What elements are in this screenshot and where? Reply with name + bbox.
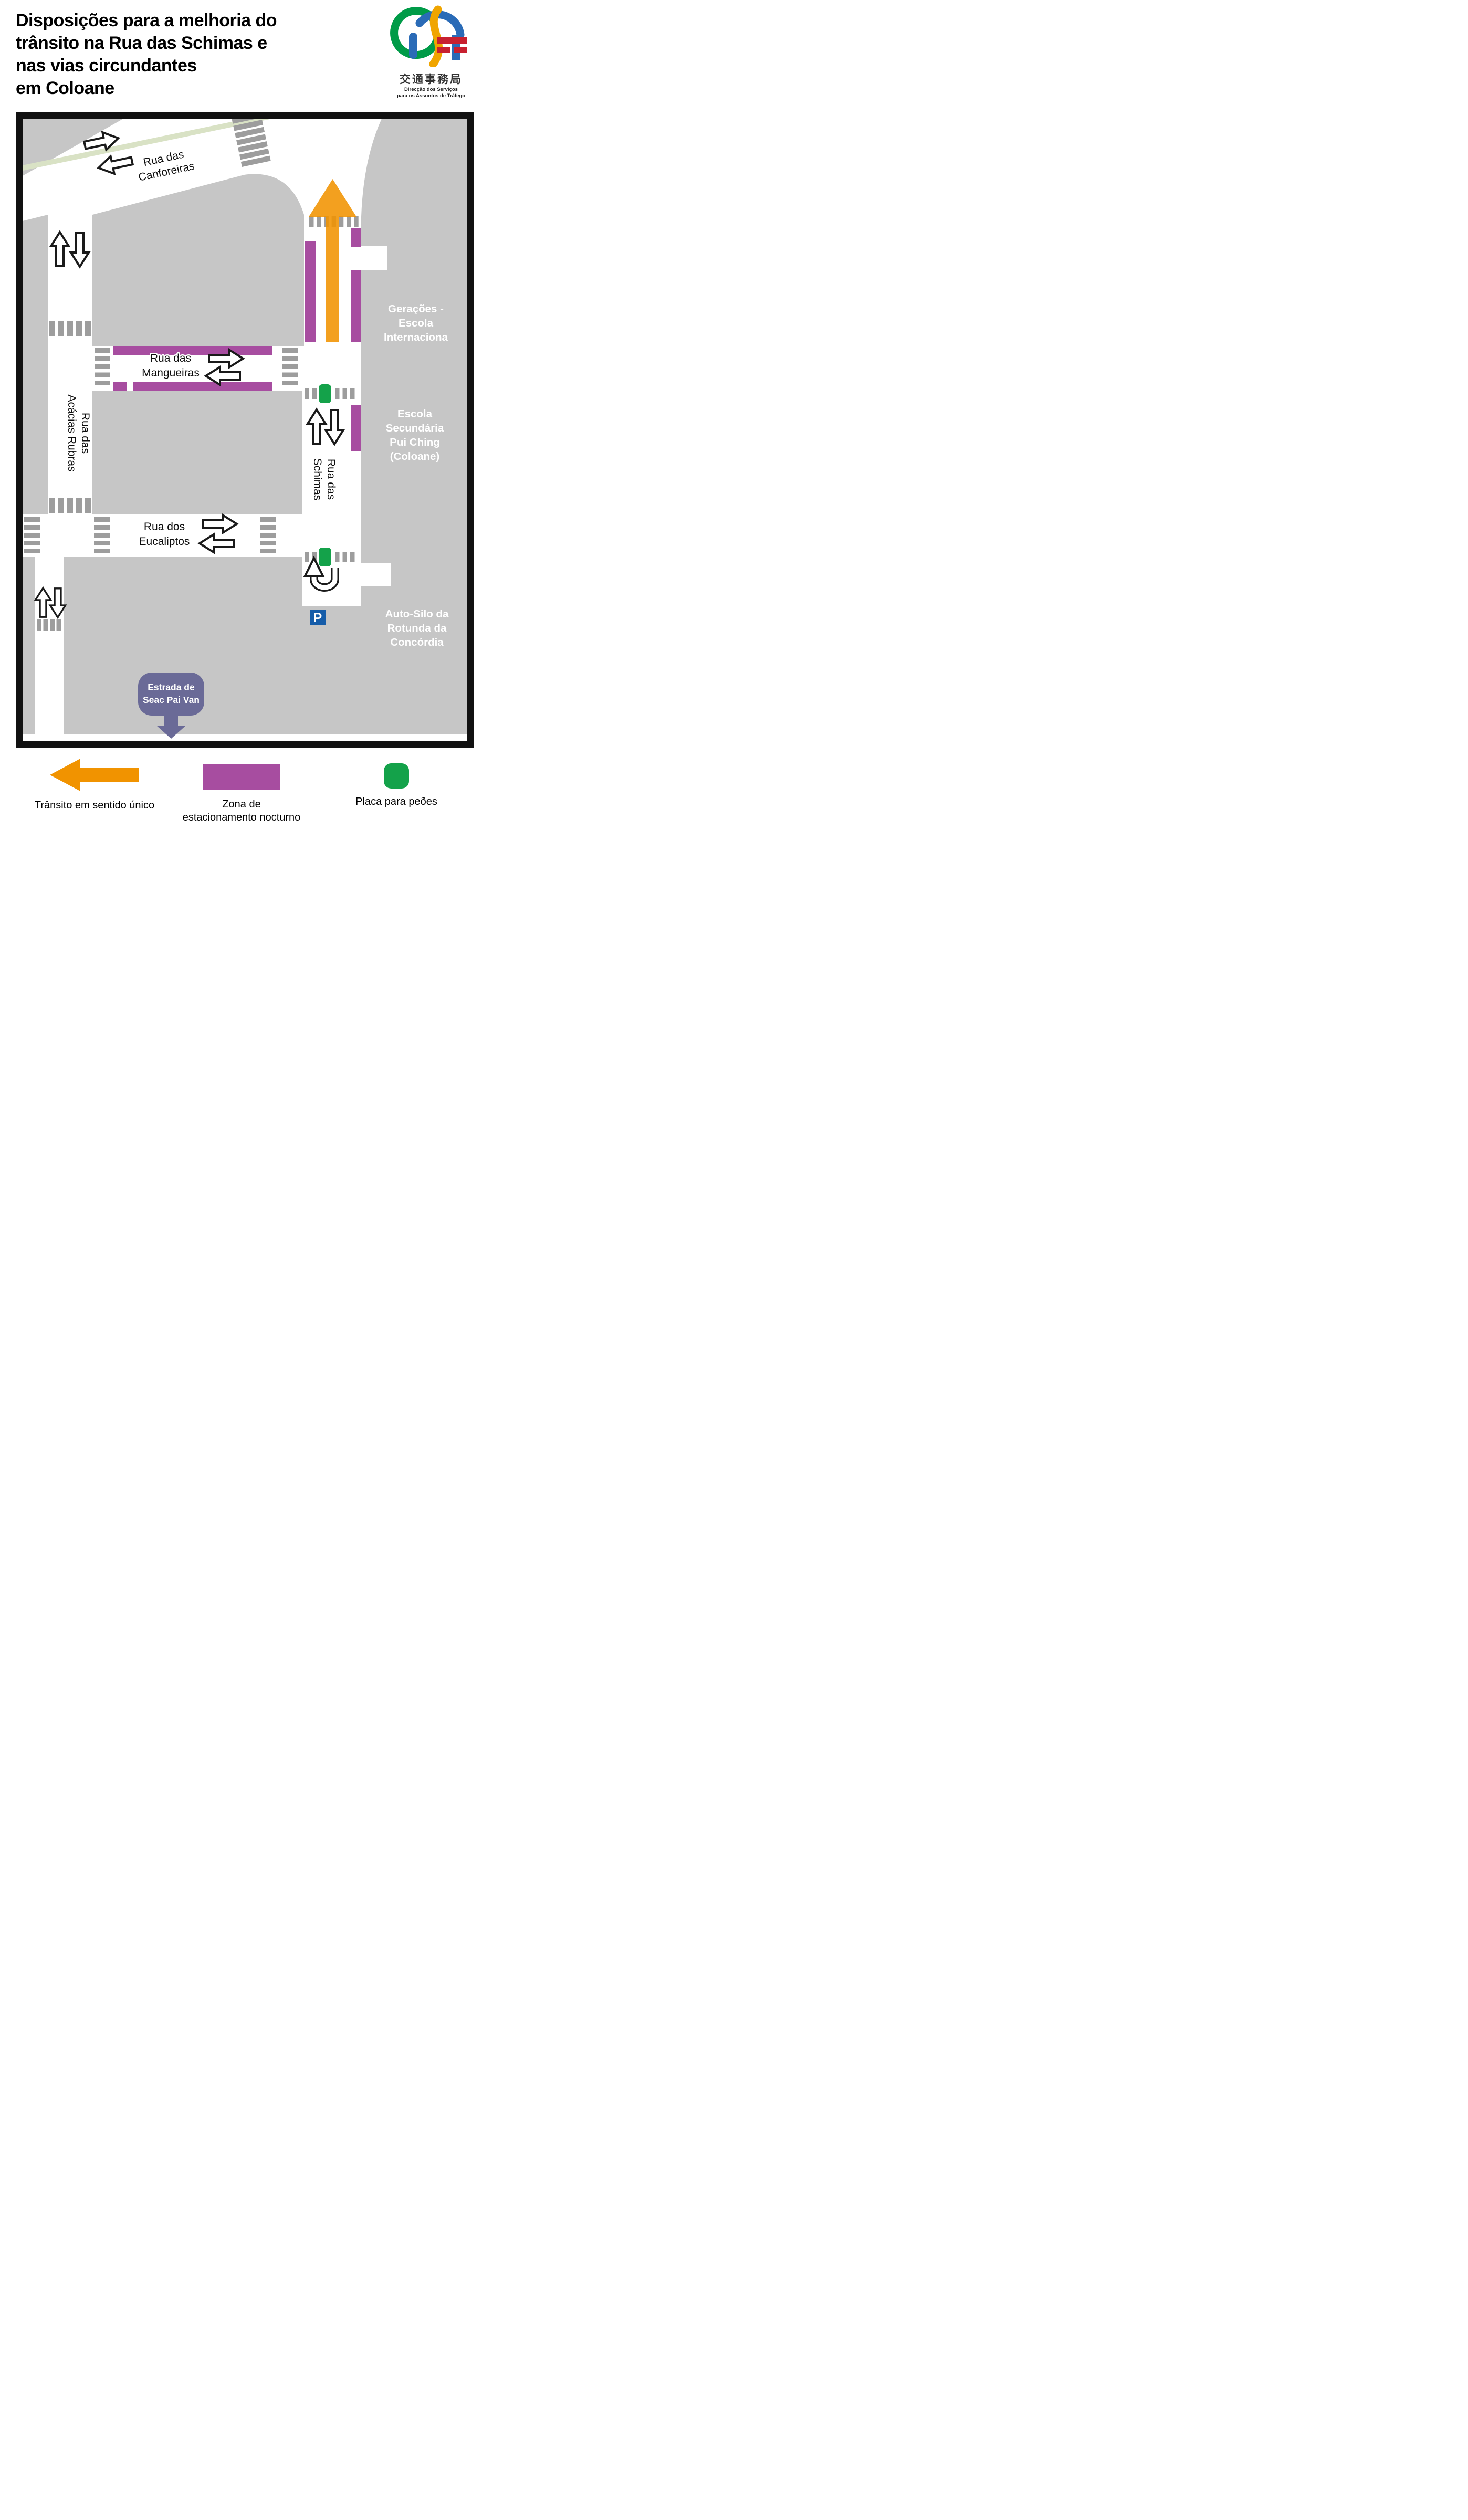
parking-zone-schimas-west — [305, 241, 316, 342]
acacias-line2: Acácias Rubras — [66, 394, 78, 471]
estrada-line1: Estrada de — [148, 682, 195, 692]
legend-one-way-label: Trânsito em sentido único — [21, 799, 168, 812]
geracoes-line1: Gerações - — [388, 303, 444, 315]
escola-line4: (Coloane) — [390, 450, 440, 463]
title-line-4: em Coloane — [16, 77, 383, 100]
dsat-logo: 交通事務局 Direcção dos Serviços para os Assu… — [385, 5, 477, 99]
night-parking-icon — [203, 764, 280, 790]
logo-chinese-name: 交通事務局 — [385, 71, 477, 87]
title-line-1: Disposições para a melhoria do — [16, 9, 383, 32]
block-central-mid — [92, 391, 302, 514]
one-way-arrow-icon — [50, 759, 139, 791]
block-left-upper — [23, 215, 48, 514]
mangueiras-line2: Mangueiras — [142, 367, 200, 379]
legend-ped-plaque-label: Placa para peões — [331, 795, 462, 808]
geracoes-line2: Escola — [399, 317, 434, 329]
traffic-map: Rua das Canforeiras Rua das Mangueiras R… — [16, 112, 474, 748]
auto-silo-line2: Rotunda da — [387, 622, 447, 634]
legend-ped-plaque: Placa para peões — [331, 762, 462, 808]
ped-plaque-icon — [383, 762, 410, 790]
ped-plaque-mangueiras — [319, 384, 331, 403]
parking-zone-schimas-east — [351, 270, 361, 342]
title-line-2: trânsito na Rua das Schimas e — [16, 32, 383, 55]
auto-silo-line1: Auto-Silo da — [385, 608, 449, 620]
logo-blue-stem — [409, 33, 417, 59]
legend-night-parking: Zona de estacionamento nocturno — [173, 764, 310, 824]
logo-pt-line2: para os Assuntos de Tráfego — [385, 93, 477, 99]
escola-line1: Escola — [397, 408, 433, 420]
entrance-geracoes — [354, 246, 387, 270]
parking-zone-schimas-east-upper — [351, 228, 361, 247]
night-parking-label-line1: Zona de — [173, 798, 310, 811]
dsat-logo-mark — [385, 5, 477, 67]
page-title: Disposições para a melhoria do trânsito … — [16, 9, 383, 100]
parking-sign: P — [310, 610, 326, 625]
parking-zone-mangueiras-south-2 — [133, 382, 272, 391]
parking-zone-mangueiras-north — [113, 346, 272, 355]
eucaliptos-line2: Eucaliptos — [139, 535, 190, 548]
escola-line3: Pui Ching — [390, 436, 440, 448]
escola-line2: Secundária — [386, 422, 444, 434]
estrada-line2: Seac Pai Van — [143, 695, 200, 705]
eucaliptos-line1: Rua dos — [144, 521, 185, 533]
geracoes-line3: Internaciona — [384, 331, 448, 343]
schimas-line1: Rua das — [325, 459, 337, 500]
logo-pt-line1: Direcção dos Serviços — [385, 87, 477, 93]
title-line-3: nas vias circundantes — [16, 55, 383, 77]
night-parking-label-line2: estacionamento nocturno — [173, 811, 310, 824]
logo-red-bar-small-right — [454, 47, 467, 52]
parking-zone-mangueiras-south-1 — [113, 382, 127, 391]
legend: Trânsito em sentido único Zona de estaci… — [0, 751, 489, 840]
parking-zone-school — [351, 405, 361, 451]
logo-red-bar-small-left — [437, 47, 450, 52]
schimas-line2: Schimas — [311, 458, 323, 501]
place-label-auto-silo: Auto-Silo da Rotunda da Concórdia — [385, 608, 449, 648]
acacias-line1: Rua das — [79, 413, 91, 454]
block-left-lower — [23, 557, 35, 734]
legend-night-parking-label: Zona de estacionamento nocturno — [173, 798, 310, 824]
legend-one-way: Trânsito em sentido único — [21, 759, 168, 812]
mangueiras-line1: Rua das — [150, 352, 191, 364]
ped-plaque-eucaliptos — [319, 548, 331, 566]
entrance-auto-silo — [360, 563, 391, 586]
parking-sign-letter: P — [313, 611, 322, 625]
logo-blue-arc — [420, 15, 460, 35]
logo-red-bar — [437, 37, 467, 44]
auto-silo-line3: Concórdia — [390, 636, 444, 648]
